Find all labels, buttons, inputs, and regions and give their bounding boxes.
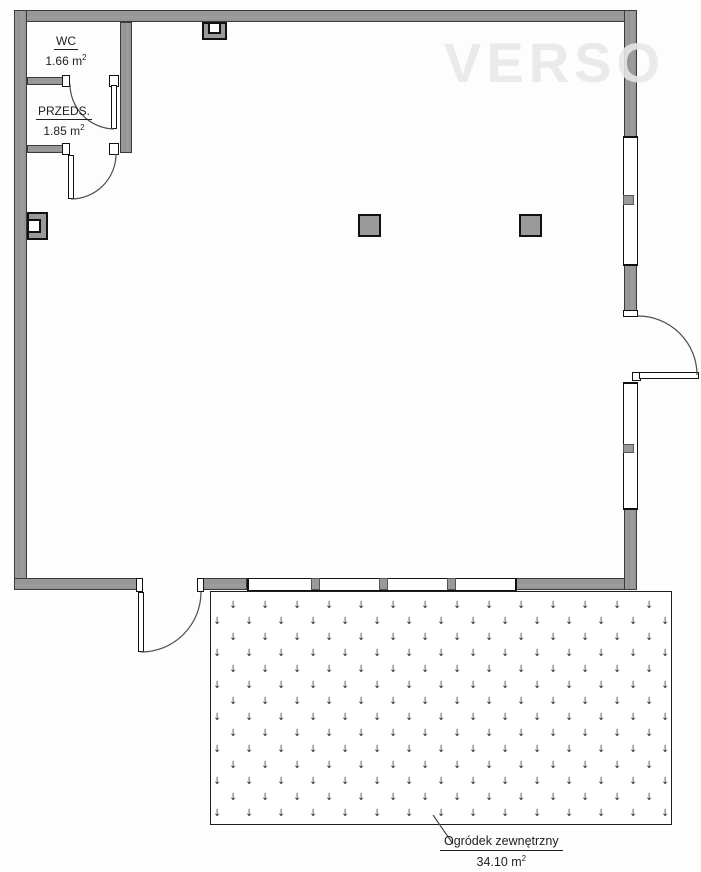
grass-symbol: ↓ (357, 761, 365, 771)
window-bottom-mullion-2 (379, 578, 388, 590)
floor-plan: VERSO ↓↓↓↓↓↓↓↓↓↓↓↓↓↓↓↓↓↓↓↓↓↓↓↓↓↓↓↓↓↓↓↓↓↓… (0, 0, 701, 872)
grass-symbol: ↓ (581, 697, 589, 707)
grass-symbol: ↓ (453, 697, 461, 707)
grass-symbol: ↓ (661, 809, 669, 819)
grass-symbol: ↓ (261, 665, 269, 675)
grass-symbol: ↓ (661, 777, 669, 787)
grass-symbol: ↓ (389, 601, 397, 611)
grass-symbol: ↓ (629, 649, 637, 659)
grass-symbol: ↓ (421, 665, 429, 675)
grass-symbol: ↓ (325, 729, 333, 739)
grass-symbol: ↓ (213, 649, 221, 659)
grass-symbol: ↓ (501, 809, 509, 819)
grass-symbol: ↓ (357, 793, 365, 803)
grass-symbol: ↓ (453, 665, 461, 675)
grass-symbol: ↓ (629, 777, 637, 787)
grass-symbol: ↓ (485, 697, 493, 707)
grass-symbol: ↓ (645, 761, 653, 771)
duct-left-opening (27, 219, 41, 233)
wall-right-upper (624, 10, 637, 138)
grass-symbol: ↓ (277, 617, 285, 627)
grass-symbol: ↓ (373, 745, 381, 755)
grass-symbol: ↓ (565, 809, 573, 819)
grass-symbol: ↓ (565, 681, 573, 691)
grass-symbol: ↓ (485, 665, 493, 675)
grass-symbol: ↓ (437, 745, 445, 755)
grass-symbol: ↓ (517, 761, 525, 771)
grass-symbol: ↓ (309, 777, 317, 787)
wc-room-name: WC (54, 34, 78, 50)
grass-symbol: ↓ (469, 681, 477, 691)
garden-label: Ogródek zewnętrzny 34.10 m2 (440, 833, 563, 870)
grass-symbol: ↓ (405, 809, 413, 819)
grass-symbol: ↓ (389, 729, 397, 739)
window-right-lower-mullion (623, 444, 634, 453)
grass-symbol: ↓ (501, 777, 509, 787)
grass-symbol: ↓ (645, 729, 653, 739)
grass-symbol: ↓ (437, 777, 445, 787)
grass-symbol: ↓ (389, 633, 397, 643)
grass-symbol: ↓ (661, 649, 669, 659)
przeds-door-jamb-right (109, 143, 119, 155)
wall-left (14, 10, 27, 590)
grass-symbol: ↓ (501, 649, 509, 659)
grass-symbol: ↓ (293, 601, 301, 611)
grass-symbol: ↓ (629, 681, 637, 691)
grass-symbol: ↓ (229, 729, 237, 739)
grass-symbol: ↓ (581, 665, 589, 675)
grass-symbol: ↓ (293, 761, 301, 771)
bottom-door-jamb-right (197, 578, 204, 592)
grass-symbol: ↓ (469, 713, 477, 723)
grass-symbol: ↓ (229, 633, 237, 643)
grass-symbol: ↓ (437, 809, 445, 819)
grass-symbol: ↓ (309, 681, 317, 691)
wall-right-lower (624, 509, 637, 590)
grass-symbol: ↓ (517, 633, 525, 643)
grass-symbol: ↓ (341, 809, 349, 819)
grass-symbol: ↓ (597, 745, 605, 755)
grass-symbol: ↓ (245, 617, 253, 627)
wall-bottom-left-segment (14, 578, 137, 590)
grass-symbol: ↓ (293, 633, 301, 643)
grass-symbol: ↓ (501, 681, 509, 691)
grass-symbol: ↓ (389, 665, 397, 675)
grass-symbol: ↓ (661, 745, 669, 755)
grass-symbol: ↓ (661, 681, 669, 691)
grass-symbol: ↓ (565, 745, 573, 755)
exterior-door-right-top-jamb (623, 310, 638, 317)
wall-wc-przeds-vertical (120, 22, 132, 153)
grass-symbol: ↓ (613, 761, 621, 771)
grass-symbol: ↓ (325, 761, 333, 771)
grass-symbol: ↓ (229, 697, 237, 707)
grass-symbol: ↓ (213, 777, 221, 787)
grass-symbol: ↓ (437, 617, 445, 627)
grass-symbol: ↓ (437, 649, 445, 659)
grass-symbol: ↓ (517, 601, 525, 611)
window-right-upper-mullion (623, 195, 634, 205)
grass-symbol: ↓ (293, 793, 301, 803)
wall-right-middle (624, 264, 637, 312)
grass-symbol: ↓ (229, 761, 237, 771)
grass-symbol: ↓ (245, 681, 253, 691)
wall-bottom-pier (202, 578, 247, 590)
grass-symbol: ↓ (485, 633, 493, 643)
grass-symbol: ↓ (613, 697, 621, 707)
column-left (358, 214, 381, 237)
grass-symbol: ↓ (565, 777, 573, 787)
grass-symbol: ↓ (277, 809, 285, 819)
grass-symbol: ↓ (613, 729, 621, 739)
przeds-room-area: 1.85 m2 (43, 124, 84, 138)
grass-symbol: ↓ (373, 617, 381, 627)
grass-symbol: ↓ (421, 697, 429, 707)
grass-symbol: ↓ (597, 809, 605, 819)
grass-symbol: ↓ (277, 713, 285, 723)
grass-symbol: ↓ (485, 729, 493, 739)
grass-symbol: ↓ (453, 729, 461, 739)
grass-symbol: ↓ (261, 697, 269, 707)
przeds-door-jamb-left (62, 143, 70, 155)
grass-symbol: ↓ (613, 633, 621, 643)
grass-symbol: ↓ (341, 745, 349, 755)
grass-symbol: ↓ (229, 601, 237, 611)
grass-symbol: ↓ (485, 793, 493, 803)
grass-symbol: ↓ (613, 601, 621, 611)
grass-symbol: ↓ (533, 649, 541, 659)
grass-symbol: ↓ (629, 745, 637, 755)
grass-symbol: ↓ (309, 809, 317, 819)
grass-symbol: ↓ (421, 793, 429, 803)
grass-symbol: ↓ (517, 697, 525, 707)
grass-symbol: ↓ (245, 649, 253, 659)
grass-symbol: ↓ (549, 793, 557, 803)
grass-symbol: ↓ (261, 761, 269, 771)
grass-symbol: ↓ (453, 761, 461, 771)
grass-symbol: ↓ (565, 617, 573, 627)
grass-symbol: ↓ (245, 713, 253, 723)
grass-symbol: ↓ (661, 617, 669, 627)
grass-symbol: ↓ (453, 793, 461, 803)
grass-symbol: ↓ (629, 809, 637, 819)
grass-symbol: ↓ (645, 601, 653, 611)
grass-symbol: ↓ (501, 617, 509, 627)
wc-door-leaf (111, 85, 117, 129)
grass-symbol: ↓ (277, 681, 285, 691)
przeds-room-name: PRZEDS. (36, 104, 92, 120)
garden-name: Ogródek zewnętrzny (440, 833, 563, 851)
wall-przeds-bottom (27, 145, 66, 153)
grass-symbol: ↓ (485, 601, 493, 611)
przeds-door-leaf (68, 155, 74, 199)
grass-symbol: ↓ (565, 649, 573, 659)
grass-symbol: ↓ (533, 777, 541, 787)
grass-symbol: ↓ (533, 617, 541, 627)
grass-symbol: ↓ (229, 665, 237, 675)
grass-symbol: ↓ (261, 601, 269, 611)
exterior-door-bottom-leaf (138, 592, 144, 652)
grass-symbol: ↓ (373, 681, 381, 691)
grass-symbol: ↓ (597, 777, 605, 787)
grass-symbol: ↓ (453, 601, 461, 611)
grass-symbol: ↓ (405, 681, 413, 691)
grass-symbol: ↓ (325, 633, 333, 643)
grass-symbol: ↓ (325, 601, 333, 611)
grass-symbol: ↓ (469, 617, 477, 627)
grass-symbol: ↓ (405, 777, 413, 787)
grass-symbol: ↓ (277, 745, 285, 755)
wall-top (14, 10, 637, 22)
grass-symbol: ↓ (213, 809, 221, 819)
grass-symbol: ↓ (501, 745, 509, 755)
grass-symbol: ↓ (581, 729, 589, 739)
wall-wc-bottom (27, 77, 66, 85)
grass-symbol: ↓ (261, 793, 269, 803)
grass-symbol: ↓ (389, 793, 397, 803)
grass-symbol: ↓ (293, 729, 301, 739)
grass-symbol: ↓ (549, 601, 557, 611)
garden-area: ↓↓↓↓↓↓↓↓↓↓↓↓↓↓↓↓↓↓↓↓↓↓↓↓↓↓↓↓↓↓↓↓↓↓↓↓↓↓↓↓… (210, 591, 672, 825)
grass-symbol: ↓ (469, 745, 477, 755)
grass-symbol: ↓ (597, 681, 605, 691)
wc-door-jamb-left (62, 75, 70, 87)
grass-symbol: ↓ (405, 745, 413, 755)
grass-symbol: ↓ (533, 681, 541, 691)
grass-symbol: ↓ (629, 713, 637, 723)
grass-symbol: ↓ (437, 681, 445, 691)
grass-symbol: ↓ (293, 665, 301, 675)
grass-symbol: ↓ (277, 649, 285, 659)
grass-symbol: ↓ (341, 681, 349, 691)
grass-symbol: ↓ (405, 713, 413, 723)
grass-symbol: ↓ (565, 713, 573, 723)
grass-symbol: ↓ (373, 809, 381, 819)
window-bottom-mullion-1 (311, 578, 320, 590)
grass-symbol: ↓ (533, 745, 541, 755)
grass-symbol: ↓ (581, 601, 589, 611)
duct-top-opening (208, 22, 221, 34)
exterior-door-right-arc (638, 316, 697, 375)
grass-symbol: ↓ (261, 633, 269, 643)
grass-symbol: ↓ (549, 665, 557, 675)
grass-symbol: ↓ (373, 777, 381, 787)
grass-symbol: ↓ (229, 793, 237, 803)
grass-symbol: ↓ (469, 649, 477, 659)
grass-symbol: ↓ (501, 713, 509, 723)
grass-symbol: ↓ (357, 601, 365, 611)
grass-symbol: ↓ (661, 713, 669, 723)
grass-symbol: ↓ (469, 809, 477, 819)
grass-symbol: ↓ (357, 665, 365, 675)
grass-symbol: ↓ (581, 761, 589, 771)
grass-symbol: ↓ (341, 777, 349, 787)
grass-symbol: ↓ (373, 713, 381, 723)
przeds-door-arc (71, 154, 116, 199)
grass-symbol: ↓ (517, 793, 525, 803)
grass-symbol: ↓ (309, 617, 317, 627)
grass-symbol: ↓ (469, 777, 477, 787)
grass-symbol: ↓ (533, 809, 541, 819)
wc-room-area: 1.66 m2 (45, 54, 86, 68)
wall-bottom-right-segment (516, 578, 637, 590)
grass-symbol: ↓ (357, 633, 365, 643)
grass-symbol: ↓ (549, 697, 557, 707)
grass-symbol: ↓ (341, 713, 349, 723)
grass-symbol: ↓ (581, 633, 589, 643)
grass-symbol: ↓ (357, 697, 365, 707)
grass-symbol: ↓ (245, 809, 253, 819)
grass-symbol: ↓ (645, 665, 653, 675)
grass-symbol: ↓ (453, 633, 461, 643)
garden-area-value: 34.10 m2 (477, 855, 527, 869)
grass-symbol: ↓ (277, 777, 285, 787)
grass-symbol: ↓ (629, 617, 637, 627)
przeds-room-label: PRZEDS. 1.85 m2 (26, 104, 102, 139)
grass-symbol: ↓ (245, 777, 253, 787)
grass-symbol: ↓ (341, 649, 349, 659)
grass-symbol: ↓ (549, 633, 557, 643)
grass-symbol: ↓ (309, 745, 317, 755)
grass-symbol: ↓ (213, 617, 221, 627)
exterior-door-right-leaf (639, 372, 699, 379)
grass-symbol: ↓ (549, 761, 557, 771)
bottom-door-jamb-left (136, 578, 143, 592)
grass-symbol: ↓ (405, 649, 413, 659)
grass-symbol: ↓ (213, 713, 221, 723)
grass-symbol: ↓ (325, 665, 333, 675)
grass-symbol: ↓ (597, 617, 605, 627)
grass-symbol: ↓ (405, 617, 413, 627)
grass-symbol: ↓ (597, 649, 605, 659)
grass-symbol: ↓ (437, 713, 445, 723)
grass-symbol: ↓ (645, 697, 653, 707)
grass-symbol: ↓ (341, 617, 349, 627)
grass-symbol: ↓ (245, 745, 253, 755)
exterior-door-bottom-arc (141, 592, 201, 652)
grass-symbol: ↓ (389, 761, 397, 771)
grass-symbol: ↓ (293, 697, 301, 707)
grass-symbol: ↓ (325, 793, 333, 803)
grass-symbol: ↓ (581, 793, 589, 803)
grass-symbol: ↓ (421, 729, 429, 739)
grass-symbol: ↓ (613, 793, 621, 803)
window-bottom-mullion-3 (447, 578, 456, 590)
grass-symbol: ↓ (389, 697, 397, 707)
grass-symbol: ↓ (517, 729, 525, 739)
column-right (519, 214, 542, 237)
grass-symbol: ↓ (597, 713, 605, 723)
grass-symbol: ↓ (517, 665, 525, 675)
grass-symbol: ↓ (421, 601, 429, 611)
grass-symbol: ↓ (549, 729, 557, 739)
grass-symbol: ↓ (533, 713, 541, 723)
grass-symbol: ↓ (645, 633, 653, 643)
grass-symbol: ↓ (485, 761, 493, 771)
grass-symbol: ↓ (213, 681, 221, 691)
grass-symbol: ↓ (325, 697, 333, 707)
grass-symbol: ↓ (645, 793, 653, 803)
grass-symbol: ↓ (421, 633, 429, 643)
grass-symbol: ↓ (309, 649, 317, 659)
grass-symbol: ↓ (309, 713, 317, 723)
grass-symbol: ↓ (261, 729, 269, 739)
grass-symbol: ↓ (357, 729, 365, 739)
grass-symbol: ↓ (421, 761, 429, 771)
grass-symbol: ↓ (213, 745, 221, 755)
grass-symbol: ↓ (613, 665, 621, 675)
wc-room-label: WC 1.66 m2 (28, 34, 104, 69)
grass-symbol: ↓ (373, 649, 381, 659)
